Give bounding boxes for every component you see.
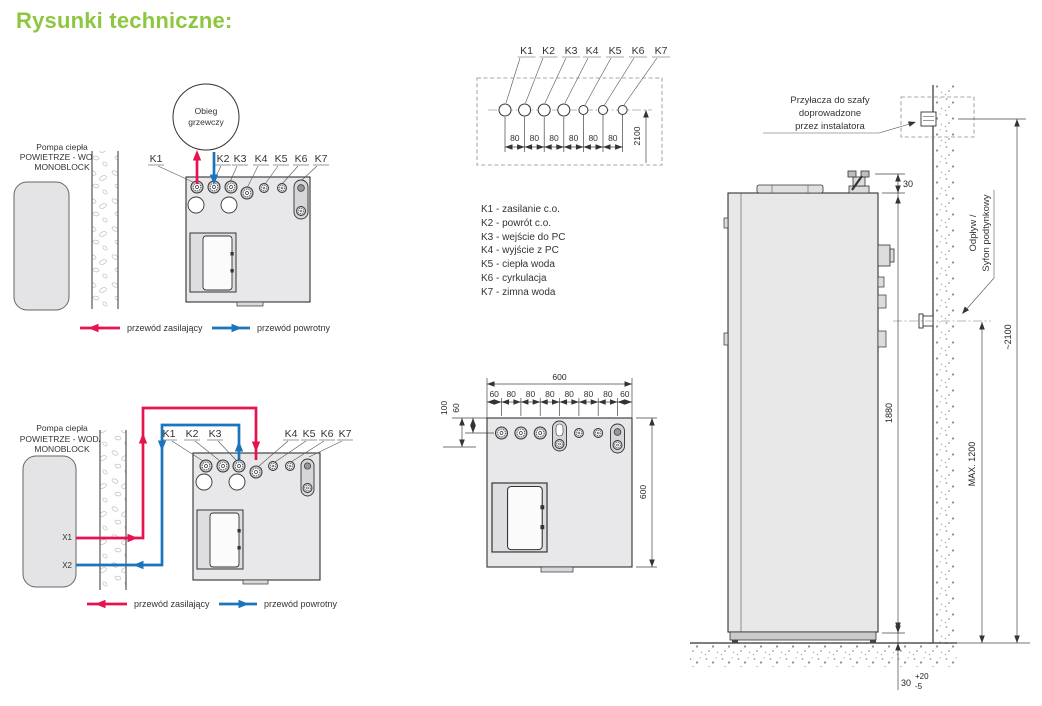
legend-k6: K6 - cyrkulacja <box>481 273 547 284</box>
rear-fittings <box>878 245 894 347</box>
pump-label-line1: Pompa ciepła <box>36 423 88 433</box>
dim-60-label: 60 <box>451 403 461 413</box>
dim-wall-2100: ~2100 <box>958 119 1026 643</box>
hole-circles <box>499 104 627 116</box>
unit-control-panel <box>197 510 243 569</box>
connector-k3 <box>225 181 237 193</box>
aux-hole-2 <box>229 474 245 490</box>
note-line3: przez instalatora <box>795 121 865 132</box>
k6-label: K6 <box>321 428 334 440</box>
unit-top-view: 600 <box>439 372 657 572</box>
connection-legend-list: K1 - zasilanie c.o. K2 - powrót c.o. K3 … <box>481 204 565 298</box>
aux-hole-1 <box>196 474 212 490</box>
aux-hole-1 <box>188 197 204 213</box>
circuit-label-line2: grzewczy <box>188 117 224 127</box>
dim-drain-max-1200: MAX. 1200 <box>967 322 985 643</box>
spacing-80-1: 80 <box>510 133 520 143</box>
k6-label: K6 <box>295 153 308 165</box>
k7-label: K7 <box>655 45 668 57</box>
dim-2100-label: 2100 <box>632 126 642 145</box>
supply-legend-arrow-icon <box>95 600 106 608</box>
top-valve-assembly <box>848 171 869 193</box>
pump-label-line3: MONOBLOCK <box>34 162 90 172</box>
spacing-80-3: 80 <box>549 133 559 143</box>
k2-label: K2 <box>217 153 230 165</box>
circuit-label-line1: Obieg <box>195 106 218 116</box>
connector-k4 <box>553 421 567 451</box>
connector-k3 <box>233 460 245 472</box>
top-vent <box>757 185 823 193</box>
heat-pump-outline <box>14 182 69 310</box>
k5-label: K5 <box>275 153 288 165</box>
note-line2: doprowadzone <box>799 108 861 119</box>
connector-k2 <box>217 460 229 472</box>
dim-600-depth: 600 <box>638 485 648 499</box>
supply-legend-label: przewód zasilający <box>134 599 210 609</box>
k5-label: K5 <box>609 45 622 57</box>
k6-label: K6 <box>632 45 645 57</box>
legend-k4: K4 - wyjście z PC <box>481 245 559 256</box>
installation-side-view: Przyłacza do szafy doprowadzone przez in… <box>690 85 1030 691</box>
k5-label: K5 <box>303 428 316 440</box>
depth-600-dimension: 600 <box>636 418 657 567</box>
diagram-monoblock-piping: Pompa ciepła POWIETRZE - WODA MONOBLOCK … <box>20 408 353 609</box>
seg-60-right: 60 <box>620 389 630 399</box>
technical-drawings-page: Rysunki techniczne: <box>0 0 1042 706</box>
return-legend-label: przewód powrotny <box>257 323 331 333</box>
x1-label: X1 <box>62 533 72 542</box>
front-fitting-upper <box>724 218 728 228</box>
dim-600-width: 600 <box>552 372 566 382</box>
connector-k7 <box>301 459 314 496</box>
supply-legend-arrow-icon <box>88 324 99 332</box>
unit-bottom-tab <box>541 567 573 572</box>
spacing-80-5: 80 <box>588 133 598 143</box>
legend-k5: K5 - ciepła woda <box>481 259 555 270</box>
legend-k3: K3 - wejście do PC <box>481 232 565 243</box>
connector-k5 <box>574 429 583 438</box>
legend-k2: K2 - powrót c.o. <box>481 218 551 229</box>
dim-1880-label: 1880 <box>884 403 894 423</box>
k7-label: K7 <box>339 428 352 440</box>
dim-top-clearance-30: 30 <box>875 174 913 193</box>
pump-label-line2: POWIETRZE - WODA <box>20 434 105 444</box>
pump-label-line3: MONOBLOCK <box>34 444 90 454</box>
seg-80-1: 80 <box>506 389 516 399</box>
k3-label: K3 <box>209 428 222 440</box>
supply-legend-label: przewód zasilający <box>127 323 203 333</box>
connector-k4 <box>241 187 253 199</box>
k2-label: K2 <box>186 428 199 440</box>
dim-max1200-label: MAX. 1200 <box>967 442 977 487</box>
unit-bottom-tab <box>237 302 263 306</box>
legend-k1: K1 - zasilanie c.o. <box>481 204 560 215</box>
k1-label: K1 <box>150 153 163 165</box>
k4-label: K4 <box>285 428 298 440</box>
connector-k5 <box>269 462 278 471</box>
k2-label: K2 <box>542 45 555 57</box>
wall-connection-box <box>921 112 936 126</box>
k4-label: K4 <box>586 45 599 57</box>
connector-k1 <box>200 460 212 472</box>
spacing-80-4: 80 <box>569 133 579 143</box>
seg-60-left: 60 <box>489 389 499 399</box>
connector-k6 <box>594 429 603 438</box>
connector-k2 <box>515 427 527 439</box>
connector-k6 <box>278 184 287 193</box>
dim-2100-label: ~2100 <box>1003 324 1013 349</box>
connection-spacing-top-view: K1 K2 K3 K4 K5 K6 K7 <box>477 45 670 165</box>
dim-feet-tol-minus: -5 <box>915 682 923 691</box>
unit-cabinet-side <box>724 171 894 643</box>
seg-80-2: 80 <box>526 389 536 399</box>
left-offset-dimensions: 100 60 <box>439 401 494 447</box>
drain-line2: Syfon podtynkowy <box>981 194 992 271</box>
spacing-80-2: 80 <box>530 133 540 143</box>
front-fitting-lower <box>724 333 728 345</box>
return-legend-arrow-icon <box>232 324 243 332</box>
drain-line1: Odpływ / <box>968 214 979 251</box>
x2-label: X2 <box>62 561 72 570</box>
height-2100-dimension: 2100 <box>632 110 649 163</box>
segment-dimensions: 60 80 80 80 80 80 80 60 <box>487 389 632 416</box>
k7-label: K7 <box>315 153 328 165</box>
cabinet-base <box>730 632 876 640</box>
dim-feet-tol-plus: +20 <box>915 672 929 681</box>
connector-k3 <box>534 427 546 439</box>
k3-label: K3 <box>565 45 578 57</box>
connector-k6 <box>286 462 295 471</box>
spacing-80-6: 80 <box>608 133 618 143</box>
connector-k7 <box>611 424 625 453</box>
foot-left <box>732 640 738 643</box>
k-labels-row: K1 K2 K3 K4 K5 K6 K7 <box>506 45 670 105</box>
seg-80-6: 80 <box>603 389 613 399</box>
foot-right <box>870 640 876 643</box>
k4-label: K4 <box>255 153 268 165</box>
aux-hole-2 <box>221 197 237 213</box>
unit-control-panel <box>190 233 236 292</box>
connector-k4 <box>250 466 262 478</box>
unit-control-panel <box>492 483 547 552</box>
wall-section <box>92 151 118 309</box>
return-legend-label: przewód powrotny <box>264 599 338 609</box>
k3-label: K3 <box>234 153 247 165</box>
wall-section <box>933 85 955 643</box>
connector-k5 <box>260 184 269 193</box>
note-line1: Przyłacza do szafy <box>790 95 869 106</box>
connector-k7 <box>294 180 308 219</box>
return-legend-arrow-icon <box>239 600 250 608</box>
seg-80-4: 80 <box>564 389 574 399</box>
legend-row: przewód zasilający przewód powrotny <box>87 599 338 609</box>
unit-bottom-tab <box>243 580 268 584</box>
connector-k1 <box>496 427 508 439</box>
dim-100-label: 100 <box>439 401 449 415</box>
spacing-dimension: 80 80 80 80 80 80 <box>505 115 623 152</box>
pump-label-line1: Pompa ciepła <box>36 142 88 152</box>
k1-label: K1 <box>520 45 533 57</box>
seg-80-3: 80 <box>545 389 555 399</box>
technical-drawings-canvas: Pompa ciepła POWIETRZE - WODA MONOBLOCK … <box>0 0 1042 706</box>
dim-feet-30: 30 <box>901 678 911 688</box>
dim-30-label: 30 <box>903 179 913 189</box>
seg-80-5: 80 <box>584 389 594 399</box>
legend-row: przewód zasilający przewód powrotny <box>80 323 331 333</box>
k1-label: K1 <box>163 428 176 440</box>
diagram-monoblock-heating-circuit: Pompa ciepła POWIETRZE - WODA MONOBLOCK … <box>14 84 331 333</box>
legend-k7: K7 - zimna woda <box>481 287 556 298</box>
floor-section <box>690 643 1030 667</box>
